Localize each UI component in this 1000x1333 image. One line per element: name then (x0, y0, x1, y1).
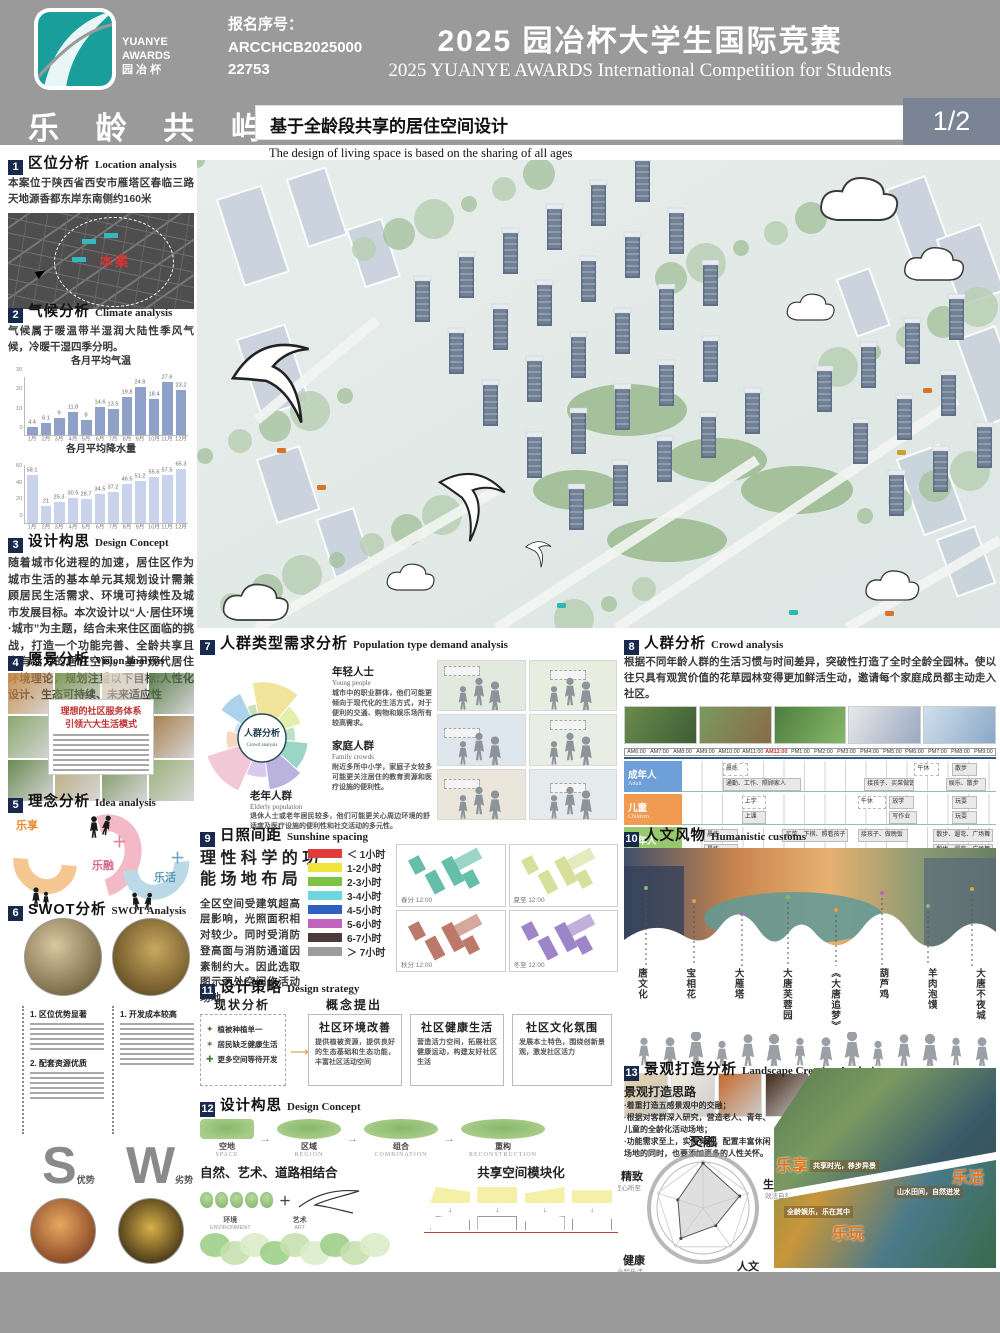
legend-swatch (308, 947, 342, 956)
s6-title-en: SWOT Analysis (112, 905, 187, 917)
bar-value: 6.1 (42, 416, 50, 422)
s1-badge: 1 (8, 160, 23, 175)
location-map: 本案 (8, 213, 194, 309)
legend-swatch (308, 919, 342, 928)
s11-title-en: Design strategy (287, 983, 359, 995)
s7-title-cn: 人群类型需求分析 (220, 632, 348, 653)
s3-title-cn: 设计构思 (28, 530, 90, 551)
module-arrow: ↓ (448, 1205, 452, 1214)
legend-swatch (308, 933, 342, 942)
brand-line1: YUANYE (122, 36, 170, 50)
module-baseline (424, 1232, 618, 1233)
vision-photo-tile (8, 673, 53, 714)
y-tick-label: 60 (16, 463, 22, 469)
time-cell: AM9:00 (695, 750, 716, 755)
s8-photo-strip (624, 706, 996, 744)
drop-dot (786, 895, 790, 899)
swot-s-photo (24, 918, 102, 996)
s2-heading: 2 气候分析 Climate analysis (8, 300, 194, 321)
s8-title-cn: 人群分析 (644, 632, 706, 653)
vision-photo-tile (149, 716, 194, 757)
bar-value: 19.8 (121, 389, 132, 395)
swot-w-cap1: 1. 开发成本较高 (120, 1009, 194, 1020)
time-cell: AM11:00 (742, 750, 763, 755)
module-arrow: ↓ (590, 1205, 594, 1214)
current-item-text: 居民缺乏健康生活 (218, 1039, 278, 1050)
stage-blob (277, 1119, 341, 1139)
bar: 85月 (81, 420, 92, 435)
schedule-lanes: 晨练通勤、工作、照顾家人午休接孩子、买菜做饭散步娱乐、散步 (682, 761, 996, 792)
schedule-time-header: AM6:00AM7:00AM8:00AM9:00AM10:00AM11:00AM… (624, 748, 996, 756)
demand-sketch-panel (437, 714, 526, 765)
custom-vertical-label: 大唐芙蓉园 (779, 968, 793, 1032)
subtitle-bar: 基于全龄段共享的居住空间设计 (255, 105, 905, 140)
y-tick-label: 10 (16, 406, 22, 412)
residential-tower (458, 252, 475, 298)
residential-tower (526, 432, 543, 478)
bar-value: 27.6 (162, 374, 173, 380)
time-cell: PM4:00 (859, 750, 880, 755)
tag-lewan: 乐玩 (832, 1220, 864, 1244)
residential-tower (888, 470, 905, 516)
residential-tower (948, 294, 965, 340)
s11-box-body: 发展本土特色，围绕创新景观，激发社区活力 (519, 1038, 605, 1058)
residential-tower (612, 460, 629, 506)
residential-tower (536, 280, 553, 326)
module-mass (572, 1187, 612, 1203)
demand-sketch-panel (529, 660, 618, 711)
s1-body: 本案位于陕西省西安市雁塔区春临三路天地源香都东岸东南侧约160米 (8, 176, 194, 208)
tree-cluster (197, 448, 213, 464)
tag-lexiang: 乐享 (776, 1152, 808, 1176)
y-tick-label: 30 (16, 367, 22, 373)
swot-w-text1 (120, 1023, 194, 1067)
sunshine-caption: 春分 12:00 (401, 894, 432, 904)
bar: 93月 (54, 418, 65, 435)
s1-title-en: Location analysis (95, 159, 177, 171)
swot-w-letter-row: W 劣势 (126, 1140, 193, 1192)
stage-label-en: REGION (295, 1152, 324, 1158)
tree-cluster (414, 199, 454, 239)
tree-icon (200, 1192, 213, 1208)
bar: 4.41月 (27, 427, 38, 436)
swot-word-s: 优势 (77, 1173, 95, 1186)
residential-tower (904, 318, 921, 364)
legend-row: 4-5小时 (308, 902, 396, 916)
residential-tower (702, 260, 719, 306)
s11-box-environment: 社区环境改善 提供植被资源，提供良好的生态基础和生态功能，丰富社区活动空间 (308, 1014, 402, 1086)
stage-label-en: RECONSTRUCTION (469, 1152, 537, 1158)
time-cell: PM3:00 (836, 750, 857, 755)
lane1-tag: 平日 (981, 635, 993, 644)
legend-label: 4-5小时 (347, 902, 381, 917)
y-tick-label: 40 (16, 480, 22, 486)
s3-heading: 3 设计构思 Design Concept (8, 530, 194, 551)
bar-value: 21 (43, 498, 49, 504)
s7-group-family: 家庭人群 Family crowds 附近多所中小学，家庭子女较多可能更关注居住… (332, 738, 432, 793)
s13-point1: ·着重打造五感景观中的交融； (624, 1100, 774, 1112)
s8-body: 根据不同年龄人群的生活习惯与时间差异，突破性打造了全时全龄全园林。使以往只具有观… (624, 655, 996, 702)
y-tick-label: 20 (16, 387, 22, 393)
s4-title-cn: 愿景分析 (28, 648, 90, 669)
yuanye-logo-mark (38, 12, 112, 86)
current-item-icon: ✶ (206, 1039, 214, 1050)
s11-title-cn: 设计策略 (220, 976, 282, 997)
yuanye-logo (34, 8, 116, 90)
s6-heading: 6 SWOT分析 SWOT Analysis (8, 898, 194, 919)
residential-tower (896, 394, 913, 440)
group-name: 老年人群 (250, 788, 430, 803)
legend-row: 2-3小时 (308, 874, 396, 888)
title-band: 乐 龄 共 屿 基于全龄段共享的居住空间设计 1/2 (0, 98, 1000, 145)
current-item-text: 植被种植单一 (218, 1024, 263, 1035)
time-cell: PM1:00 (790, 750, 811, 755)
time-cell: AM10:00 (718, 750, 740, 755)
s11-box-title: 社区文化氛围 (519, 1019, 605, 1035)
demand-sketch-panel (437, 660, 526, 711)
legend-swatch (308, 863, 342, 872)
residential-tower (860, 342, 877, 388)
time-cell: PM2:00 (813, 750, 834, 755)
bar-value: 37.2 (108, 485, 119, 491)
tag-lewan-caption: 全龄娱乐，乐在其中 (784, 1206, 853, 1218)
radar-axis-sublabel: 匠心所至 (618, 1183, 642, 1192)
s12-heading: 12 设计构思 Design Concept (200, 1094, 618, 1115)
custom-vertical-label: 羊肉泡馍 (924, 968, 938, 1032)
concept-stage: 区域REGION (277, 1119, 341, 1158)
aerial-rendering-svg (197, 160, 1000, 628)
swot-s-letter-row: S 优势 (42, 1140, 95, 1192)
activity-chip: 上课 (742, 811, 767, 824)
concept-left: 自然、艺术、道路相结合 ＋ 环境 ENVIRONMENT 艺术 ART (200, 1162, 410, 1267)
swot-letter-s: S (42, 1140, 77, 1192)
concept-stage: 空地SPACE (200, 1119, 254, 1158)
swot-s-cap1: 1. 区位优势显著 (30, 1009, 104, 1020)
competition-title-cn: 2025 园冶杯大学生国际竞赛 (330, 16, 950, 60)
drop-dot (834, 908, 838, 912)
residential-tower (502, 228, 519, 274)
module-column: ↓ (572, 1187, 612, 1230)
vision-photo-tile (8, 716, 53, 757)
s11-box-body: 营造活力空间，拓展社区健康运动，构建友好社区生活 (417, 1038, 497, 1068)
legend-row: 5-6小时 (308, 916, 396, 930)
radar-polygon (678, 1163, 740, 1238)
residential-tower (624, 232, 641, 278)
stage-arrow: → (347, 1133, 358, 1145)
residential-tower (614, 384, 631, 430)
s9-badge: 9 (200, 832, 215, 847)
vision-card-title1: 理想的社区服务体系 (53, 704, 149, 717)
custom-vertical-label: 《大唐追梦》 (827, 968, 841, 1032)
chart-title: 各月平均气温 (8, 352, 194, 367)
s12-caption-right: 共享空间模块化 (424, 1162, 618, 1181)
aerial-rendering (197, 160, 1000, 628)
module-mass (477, 1187, 517, 1203)
schedule-lanes: 上学上课午休放学写作业玩耍玩耍 (682, 794, 996, 825)
drop-dot (644, 886, 648, 890)
residential-tower (482, 380, 499, 426)
arrow-right-icon: ⟶ (290, 1044, 309, 1060)
crowd-photo (774, 706, 847, 744)
s12-caption-left: 自然、艺术、道路相结合 (200, 1162, 410, 1181)
tree-cluster (601, 596, 617, 612)
building-block (574, 935, 592, 955)
vision-card: 理想的社区服务体系 引领六大生活模式 (48, 699, 154, 775)
sunshine-card: 夏至 12:00 (509, 844, 619, 907)
bar: 28.75月 (81, 499, 92, 523)
s2-title-en: Climate analysis (95, 307, 172, 319)
residential-tower (702, 336, 719, 382)
radar-axis-sublabel: 共享时光 (692, 1149, 719, 1158)
section-7-population: 7 人群类型需求分析 Population type demand analys… (200, 632, 618, 653)
legend-label: 3-4小时 (347, 888, 381, 903)
swot-letter-w: W (126, 1140, 175, 1192)
map-site-marker: 本案 (100, 251, 130, 270)
tree-cluster (329, 552, 345, 568)
tree-icon (230, 1192, 243, 1208)
section-11-strategy: 11 设计策略 Design strategy 现状分析 概念提出 ✦植被种植单… (200, 976, 618, 997)
tag-lehuo-caption: 山水田间，自然迸发 (894, 1186, 963, 1198)
footer-band (0, 1272, 1000, 1333)
legend-swatch (308, 849, 342, 858)
car (277, 448, 286, 453)
s2-title-cn: 气候分析 (28, 300, 90, 321)
custom-vertical-label: 大唐不夜城 (972, 968, 986, 1032)
concept-stage: 组合COMBINATION (364, 1119, 438, 1158)
s8-heading: 8 人群分析 Crowd analysis (624, 632, 996, 653)
legend-row: 3-4小时 (308, 888, 396, 902)
schedule-row-label: 成年人Adult平日周末 (624, 761, 682, 792)
s4-heading: 4 愿景分析 Vision analysis (8, 648, 194, 669)
s3-title-en: Design Concept (95, 537, 169, 549)
s5-title-cn: 理念分析 (28, 790, 90, 811)
competition-poster: YUANYE AWARDS 园 冶 杯 报名序号： ARCCHCB2025000… (0, 0, 1000, 1333)
group-en: Young people (332, 679, 432, 687)
bar-value: 57.5 (162, 468, 173, 474)
vision-card-title2: 引领六大生活模式 (53, 717, 149, 730)
residential-tower (852, 418, 869, 464)
section-4-vision: 4 愿景分析 Vision analysis 理想的社区服务体系 引领六大生活模… (8, 648, 194, 801)
module-outline (477, 1216, 517, 1230)
legend-label: ＞ 7小时 (347, 944, 385, 959)
airplane-icon (35, 267, 48, 279)
residential-tower (658, 360, 675, 406)
building-block (408, 855, 426, 875)
bar: 14.66月 (95, 407, 106, 435)
stage-arrow: → (444, 1133, 455, 1145)
radar-axis-label: 人文 (737, 1259, 760, 1272)
trees-plus-art: ＋ (200, 1185, 410, 1215)
s10-heading: 10 人文风物 Humanistic customs (624, 824, 996, 845)
residential-tower (526, 356, 543, 402)
sub1-en: ENVIRONMENT (210, 1225, 251, 1231)
legend-label: ＜ 1小时 (347, 846, 385, 861)
module-column: ↓ (525, 1187, 565, 1230)
leaf-icon (38, 12, 112, 86)
car (557, 603, 566, 608)
row-name: 成年人 (628, 767, 682, 781)
swot-spine (112, 1006, 114, 1134)
s11-badge: 11 (200, 984, 215, 999)
rose-center-en: Crowd analysis (247, 743, 278, 748)
current-item: ✶居民缺乏健康生活 (206, 1039, 280, 1050)
bar: 6.12月 (41, 423, 52, 435)
legend-row: ＞ 7小时 (308, 944, 396, 958)
subtitle-en: The design of living space is based on t… (269, 146, 572, 161)
s10-badge: 10 (624, 832, 639, 847)
map-poi-chip (72, 257, 86, 262)
s11-box-health: 社区健康生活 营造活力空间，拓展社区健康运动，构建友好社区生活 (410, 1014, 504, 1086)
stage-blob (200, 1119, 254, 1139)
section-1-location: 1 区位分析 Location analysis 本案位于陕西省西安市雁塔区春临… (8, 152, 194, 309)
s2-body: 气候属于暖温带半湿润大陆性季风气候，冷暖干湿四季分明。 (8, 324, 194, 356)
bar-value: 65.3 (175, 462, 186, 468)
stage-label-en: SPACE (215, 1152, 238, 1158)
current-item-icon: ✚ (206, 1054, 214, 1065)
car (317, 485, 326, 490)
residential-tower (570, 408, 587, 454)
activity-chip: 娱乐、散步 (946, 778, 987, 791)
module-column: ↓ (477, 1187, 517, 1230)
swot-w-list: 1. 开发成本较高 (120, 1004, 194, 1067)
chart-title: 各月平均降水量 (8, 440, 194, 455)
residential-tower (580, 256, 597, 302)
bar-value: 18.4 (148, 392, 159, 398)
row-name-en: Children (628, 814, 682, 820)
canopy-blob (360, 1233, 390, 1257)
tree-cluster (352, 237, 376, 261)
activity-chip: 写作业 (889, 811, 917, 824)
drop-dot (740, 912, 744, 916)
module-outline (525, 1216, 565, 1230)
map-poi-chip (82, 239, 96, 244)
project-name: 乐 龄 共 屿 (28, 103, 276, 148)
activity-chip: 接孩子、买菜做饭 (864, 778, 914, 791)
s1-heading: 1 区位分析 Location analysis (8, 152, 194, 173)
time-cell: PM9:00 (973, 750, 994, 755)
group-desc: 城市中的职业群体，他们可能更倾向于现代化的生活方式，对于便利的交通、购物和娱乐场… (332, 689, 432, 730)
swot-o-photo (30, 1198, 96, 1264)
s3-badge: 3 (8, 538, 23, 553)
legend-row: 1-2小时 (308, 860, 396, 874)
sub2-en: ART (293, 1225, 307, 1231)
schedule-divider (624, 757, 996, 759)
swot-s-text1 (30, 1023, 104, 1053)
demand-sketch-panel (529, 714, 618, 765)
s5-heading: 5 理念分析 Idea analysis (8, 790, 194, 811)
s4-title-en: Vision analysis (95, 655, 165, 667)
custom-vertical-label: 唐文化 (634, 968, 648, 1032)
custom-vertical-label: 葫芦鸡 (875, 968, 889, 1032)
swot-s-text2 (30, 1072, 104, 1102)
swot-spine (22, 1006, 24, 1134)
current-item-icon: ✦ (206, 1024, 214, 1035)
bar: 212月 (41, 506, 52, 523)
group-name: 年轻人士 (332, 664, 432, 679)
section-2-climate: 2 气候分析 Climate analysis 气候属于暖温带半湿润大陆性季风气… (8, 300, 194, 356)
module-arrow: ↓ (495, 1205, 499, 1214)
drop-dot (880, 891, 884, 895)
tree-cluster (337, 388, 353, 404)
residential-tower (590, 180, 607, 226)
chart-plot: 01020304.41月6.12月93月11.84月85月14.66月13.57… (24, 377, 188, 436)
sunshine-legend: ＜ 1小时1-2小时2-3小时3-4小时4-5小时5-6小时6-7小时＞ 7小时 (308, 846, 396, 958)
residential-tower (700, 412, 717, 458)
activity-chip: 午休 (914, 763, 939, 776)
time-cell: AM6:00 (626, 750, 647, 755)
map-poi-chip (104, 233, 118, 238)
tree-cluster (733, 240, 749, 256)
custom-vertical-label: 宝相花 (682, 968, 696, 1032)
module-mass (525, 1187, 565, 1203)
stage-label-cn: 区域 (301, 1141, 317, 1152)
bar: 23.212月 (176, 390, 187, 435)
bar: 51.29月 (135, 481, 146, 523)
s8-badge: 8 (624, 640, 639, 655)
stage-label-cn: 重构 (495, 1141, 511, 1152)
s9-heading: 9 日照间距 Sunshine spacing (200, 824, 618, 845)
s11-box-body: 提供植被资源，提供良好的生态基础和生态功能，丰富社区活动空间 (315, 1038, 395, 1068)
row-name: 儿童 (628, 800, 682, 814)
building-block (520, 921, 538, 941)
building-block (454, 848, 483, 871)
module-outline (572, 1216, 612, 1230)
panorama (624, 848, 996, 966)
stage-blob (364, 1119, 438, 1139)
tree-icon (215, 1192, 228, 1208)
s11-box-title: 社区健康生活 (417, 1019, 497, 1035)
building-block (574, 869, 592, 889)
vision-collage: 理想的社区服务体系 引领六大生活模式 (8, 673, 194, 801)
bar: 24.99月 (135, 387, 146, 435)
crowd-photo (923, 706, 996, 744)
sub-labels: 环境 ENVIRONMENT 艺术 ART (210, 1215, 410, 1231)
time-cell: PM8:00 (950, 750, 971, 755)
bar-value: 58.1 (27, 468, 38, 474)
stage-label-en: COMBINATION (375, 1152, 428, 1158)
demand-sketch-panel (437, 769, 526, 820)
time-cell: AM12:00 (765, 750, 787, 755)
s11-current-box: ✦植被种植单一✶居民缺乏健康生活✚更多空间等待开发 (200, 1014, 286, 1086)
concept-right: 共享空间模块化 ↓↓↓↓ (410, 1162, 618, 1267)
legend-row: 6-7小时 (308, 930, 396, 944)
s11-col1-title: 现状分析 (214, 996, 270, 1013)
bar: 34.56月 (95, 494, 106, 523)
sunshine-card: 秋分 12:00 (396, 910, 506, 973)
bar-value: 8 (85, 412, 88, 418)
y-tick-label: 0 (19, 425, 22, 431)
activity-chip: 午休 (858, 796, 886, 809)
sunshine-caption: 秋分 12:00 (401, 959, 432, 969)
radar-axis-label: 交融 (689, 1136, 717, 1149)
tree-cluster (492, 177, 516, 201)
activity-chip: 上学 (742, 796, 767, 809)
activity-chip: 玩耍 (952, 811, 977, 824)
residential-tower (932, 446, 949, 492)
building-block (566, 913, 595, 936)
residential-tower (744, 388, 761, 434)
section-6-swot: 6 SWOT分析 SWOT Analysis 1. 区位优势显著 2. 配套资源… (8, 898, 194, 919)
landscape-radar-chart: 交融共享时光生态效法自然人文溯源本土健康全龄乐活精致匠心所至 (618, 1136, 788, 1272)
legend-row: ＜ 1小时 (308, 846, 396, 860)
tree-cluster (632, 577, 656, 601)
sub2-cn: 艺术 (293, 1215, 307, 1225)
s10-title-cn: 人文风物 (644, 824, 706, 845)
legend-label: 5-6小时 (347, 916, 381, 931)
residential-tower (492, 304, 509, 350)
s10-title-en: Humanistic customs (711, 831, 806, 843)
y-tick-label: 20 (16, 497, 22, 503)
